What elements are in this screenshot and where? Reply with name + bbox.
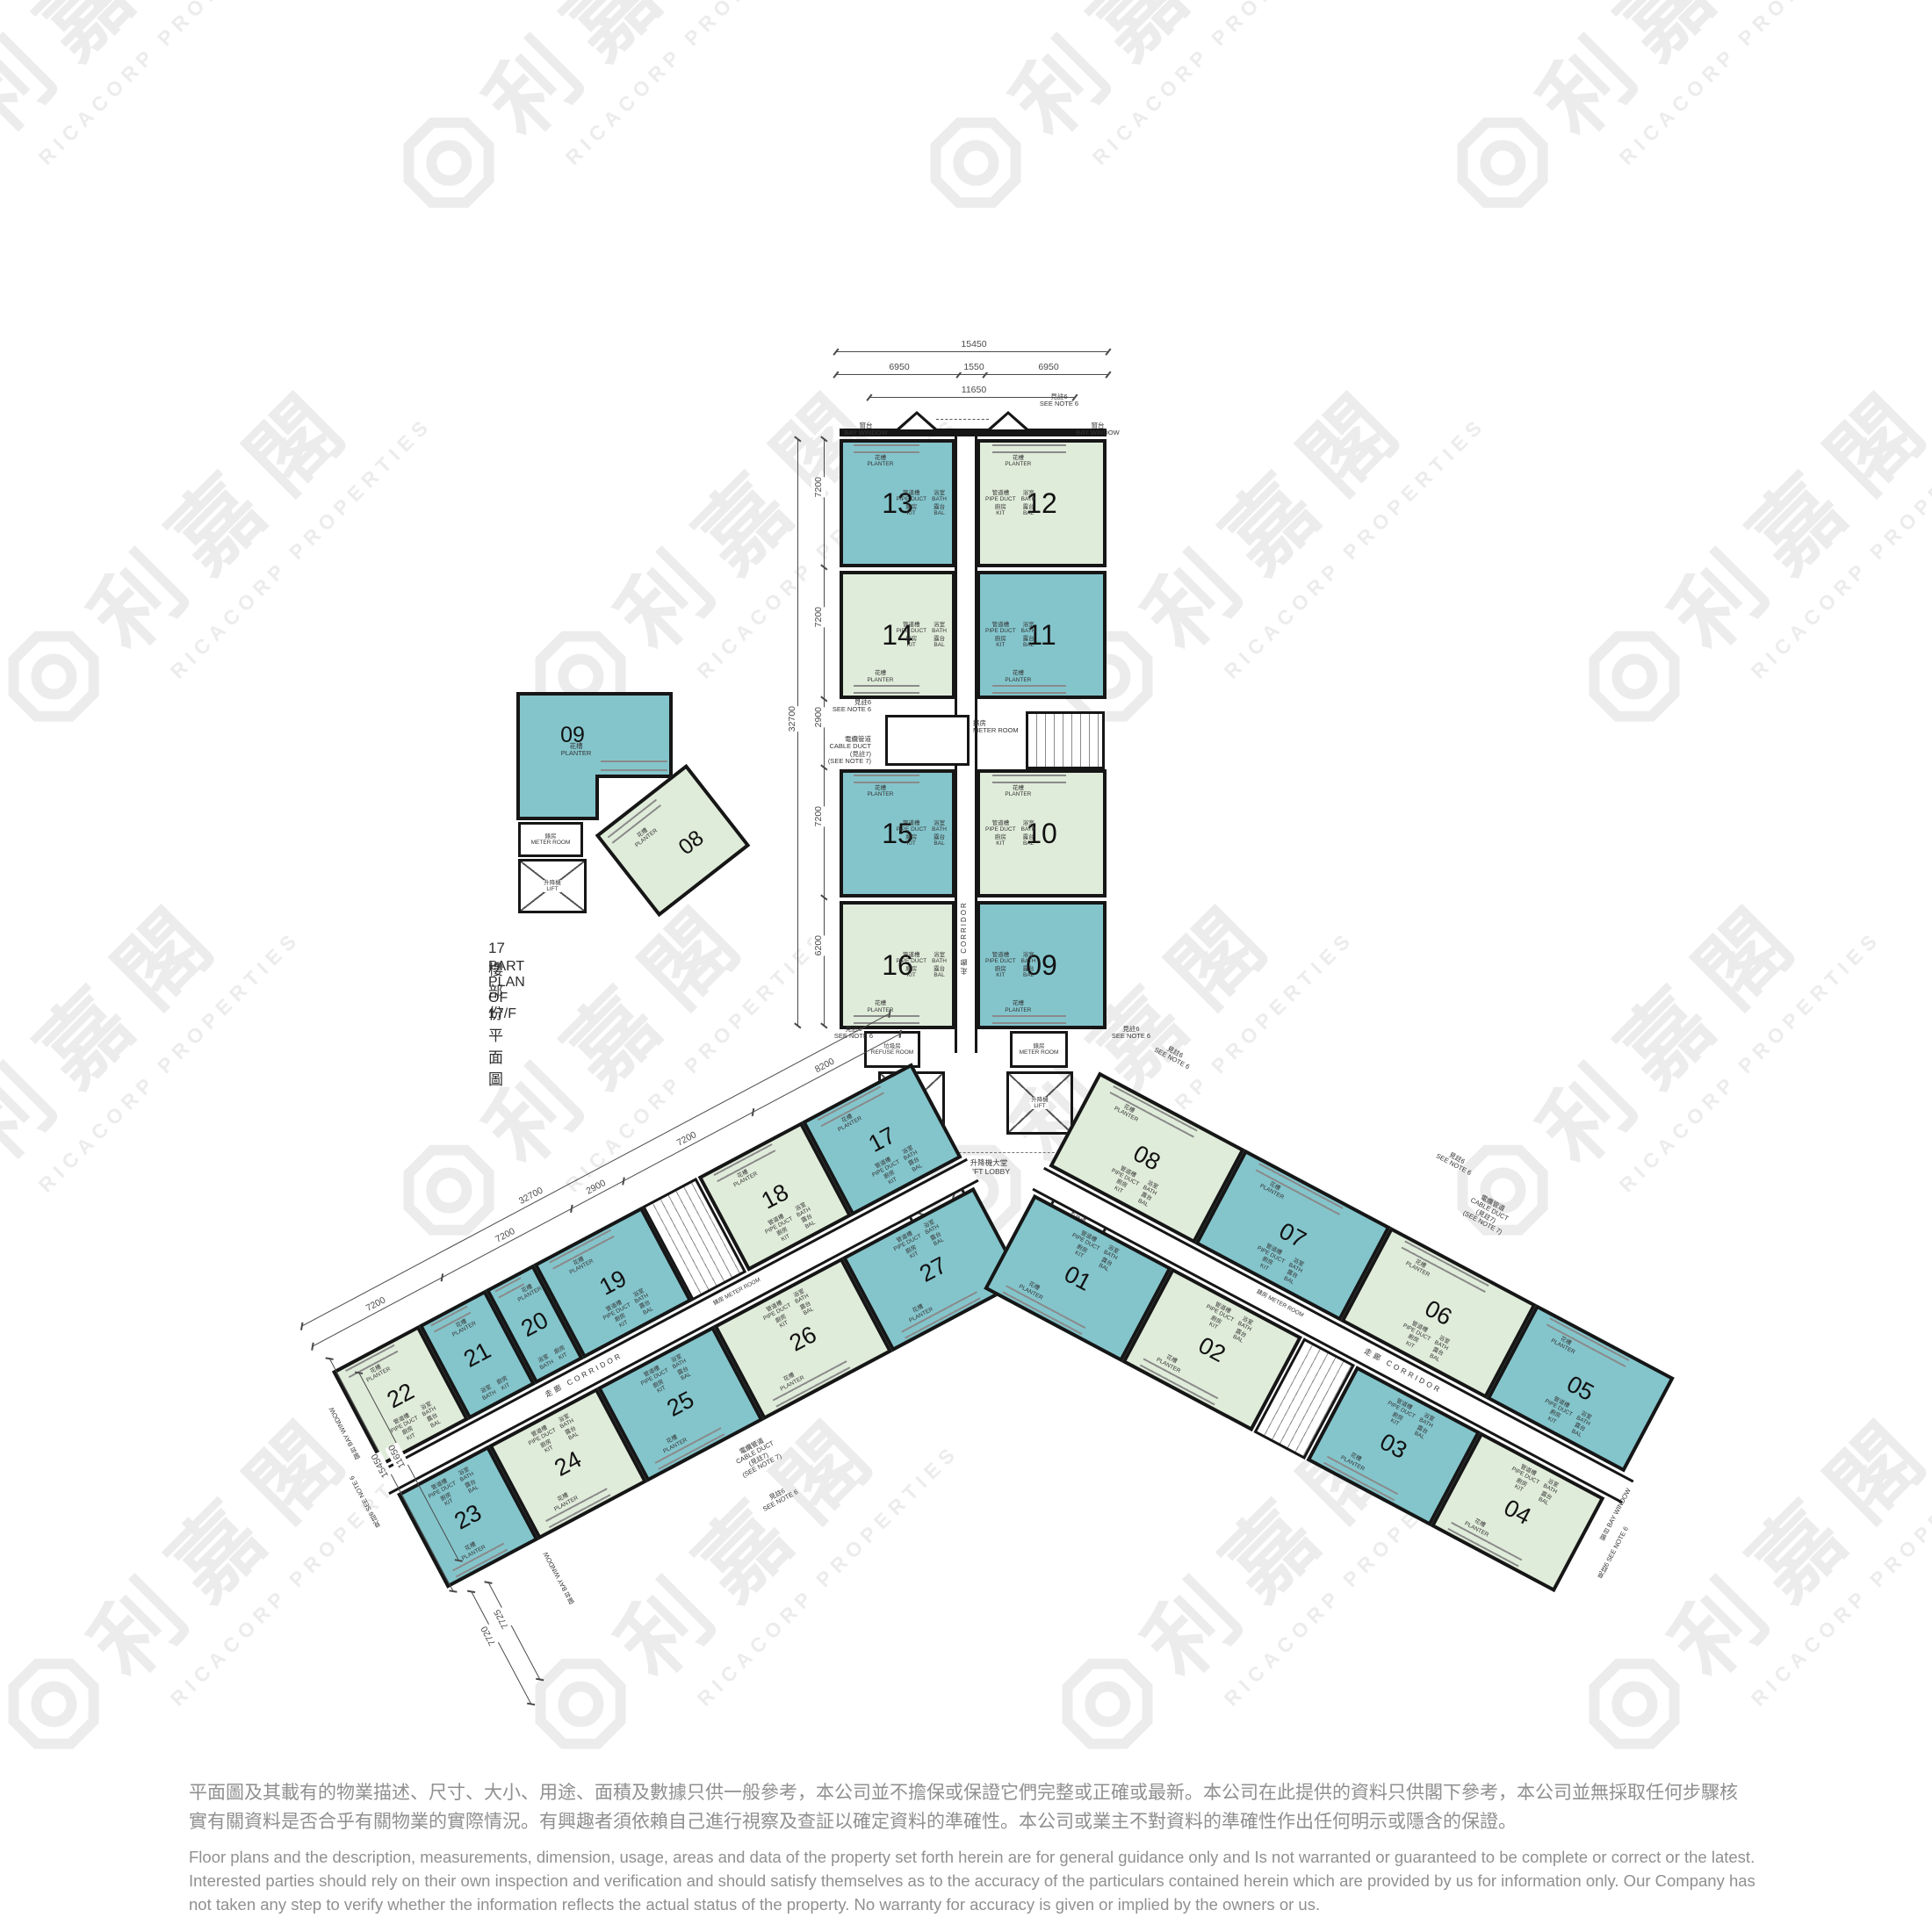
- room-label: 浴室BATH: [1021, 952, 1036, 965]
- room-label-zh: 露台: [932, 636, 947, 642]
- unit-15: 15花槽PLANTER管道槽PIPE DUCT浴室BATH廚房KIT露台BAL: [840, 769, 955, 898]
- meter-room-label: 錶房 METER ROOM: [531, 833, 571, 847]
- room-labels: 管道槽PIPE DUCT浴室BATH廚房KIT露台BAL: [985, 490, 1036, 516]
- room-label-zh: 露台: [932, 966, 947, 972]
- planter-label-zh: 花槽: [987, 1000, 1049, 1006]
- room-label-zh: 管道槽: [985, 820, 1016, 826]
- dim-tick: [449, 1590, 457, 1592]
- room-label-zh: 露台: [1021, 966, 1036, 972]
- room-label-zh: 浴室: [1021, 490, 1036, 496]
- unit-number: 18: [757, 1179, 793, 1215]
- corridor-label: 走廊 CORRIDOR: [959, 878, 969, 975]
- room-label-zh: 廚房: [896, 636, 926, 642]
- dim-tick: [1105, 348, 1111, 355]
- room-label-zh: 浴室: [932, 490, 947, 496]
- floor-plan-canvas: 利嘉閣RICACORP PROPERTIES利嘉閣RICACORP PROPER…: [0, 0, 1932, 1932]
- room-label-en: PIPE DUCT: [896, 826, 926, 833]
- part-plan-caption-en: PART PLAN OF 17/F: [488, 959, 525, 1022]
- planter-strip: [854, 685, 919, 694]
- room-label-en: BATH: [1021, 496, 1036, 502]
- room-label: 浴室BATH: [479, 1383, 498, 1402]
- planter-strip: [601, 761, 667, 771]
- room-labels: 管道槽PIPE DUCT浴室BATH廚房KIT露台BAL: [896, 622, 947, 648]
- dim-top-total: [836, 351, 1108, 352]
- planter-strip: [854, 1015, 919, 1024]
- planter-strip: [992, 685, 1066, 694]
- dim-label: 7725: [490, 1607, 512, 1632]
- bay-window-icon: [987, 411, 1029, 429]
- room-label: 浴室BATH: [1021, 820, 1036, 833]
- room-label: 管道槽PIPE DUCT: [985, 490, 1016, 503]
- room-label: 露台BAL: [1021, 636, 1036, 649]
- room-label-en: PIPE DUCT: [896, 958, 926, 964]
- lift-zh: 升降機: [1031, 1097, 1049, 1103]
- room-label-en: KIT: [985, 840, 1016, 847]
- room-label: 廚房KIT: [896, 966, 926, 979]
- room-label-en: PIPE DUCT: [985, 826, 1016, 833]
- room-label: 露台BAL: [932, 504, 947, 517]
- room-label: 管道槽PIPE DUCT: [896, 820, 926, 833]
- bay-window-zh: 窗台: [563, 1590, 576, 1605]
- meter-room-box: 錶房 METER ROOM: [1010, 1031, 1068, 1068]
- meter-room-zh: 錶房: [1020, 1043, 1059, 1049]
- planter-label-zh: 花槽: [849, 785, 911, 791]
- dim-label: 7200: [349, 1287, 403, 1323]
- planter-label-en: PLANTER: [987, 1007, 1049, 1013]
- bay-window-label: 窗台 BAY WINDOW: [829, 422, 903, 437]
- room-label-zh: 露台: [932, 504, 947, 510]
- room-label-en: BAL: [932, 510, 947, 516]
- room-label-en: PIPE DUCT: [896, 496, 926, 502]
- room-label: 廚房KIT: [985, 504, 1016, 517]
- floor-plan: 1545069501550695011650 72007200290072006…: [0, 0, 1932, 1932]
- see-note-6-label: 見註6 SEE NOTE 6: [1017, 393, 1101, 408]
- room-label-zh: 管道槽: [896, 622, 926, 628]
- dim-label: 6200: [811, 935, 825, 955]
- room-label-zh: 浴室: [1021, 622, 1036, 628]
- planter-label-zh: 花槽: [987, 670, 1049, 676]
- planter-label: 花槽PLANTER: [987, 670, 1049, 683]
- planter-strip: [992, 1015, 1066, 1024]
- dim-label: 6950: [871, 362, 927, 372]
- bay-window-label-en: BAY WINDOW: [1061, 429, 1135, 436]
- unit-14: 14花槽PLANTER管道槽PIPE DUCT浴室BATH廚房KIT露台BAL: [840, 571, 955, 699]
- room-label-zh: 管道槽: [896, 952, 926, 958]
- see-note-6-en: SEE NOTE 6: [1131, 1035, 1212, 1083]
- room-label: 浴室BATH: [536, 1353, 555, 1372]
- unit-number: 08: [674, 825, 709, 861]
- planter-label-zh: 花槽: [987, 455, 1049, 461]
- room-label-en: KIT: [985, 972, 1016, 978]
- planter-label-en: PLANTER: [849, 677, 911, 683]
- bay-window-en: BAY WINDOW: [328, 1406, 355, 1448]
- unit-number: 02: [1194, 1331, 1230, 1367]
- unit-09: 09花槽PLANTER管道槽PIPE DUCT浴室BATH廚房KIT露台BAL: [977, 901, 1107, 1029]
- dim-label: 7200: [811, 477, 825, 497]
- unit-number: 20: [516, 1306, 552, 1342]
- room-label-en: BAL: [932, 972, 947, 978]
- room-labels: 浴室BATH廚房KIT: [536, 1345, 569, 1372]
- unit-11: 11花槽PLANTER管道槽PIPE DUCT浴室BATH廚房KIT露台BAL: [977, 571, 1107, 699]
- room-label-en: PIPE DUCT: [985, 958, 1016, 964]
- lift-en: LIFT: [544, 886, 561, 892]
- unit-number: 05: [1562, 1370, 1598, 1406]
- room-label: 浴室BATH: [932, 820, 947, 833]
- see-note-6-en: SEE NOTE 6: [348, 1474, 373, 1512]
- room-label-en: BAL: [1021, 510, 1036, 516]
- planter-strip: [854, 444, 919, 453]
- planter-label-en: PLANTER: [987, 791, 1049, 797]
- lift-zh: 升降機: [544, 880, 561, 886]
- corridor-label-zh: 走廊: [960, 957, 968, 975]
- staircase: [1026, 711, 1105, 769]
- dim-label: 7200: [811, 607, 825, 627]
- unit-number: 06: [1420, 1294, 1456, 1330]
- room-label: 露台BAL: [1021, 834, 1036, 847]
- room-label-zh: 露台: [1021, 504, 1036, 510]
- lift-box: 升降機 LIFT: [518, 859, 587, 913]
- unit-number: 22: [382, 1377, 418, 1413]
- room-label: 管道槽PIPE DUCT: [896, 622, 926, 635]
- room-label: 廚房KIT: [553, 1345, 569, 1362]
- room-label: 廚房KIT: [985, 966, 1016, 979]
- room-label-en: BAL: [932, 840, 947, 847]
- room-label: 廚房KIT: [896, 834, 926, 847]
- room-label-zh: 廚房: [896, 966, 926, 972]
- cable-duct-label: 電纜管道 CABLE DUCT (見註7) (SEE NOTE 7): [746, 736, 871, 766]
- room-label-en: PIPE DUCT: [985, 628, 1016, 634]
- dim-left-wing-tip: [488, 1582, 541, 1680]
- room-label-en: KIT: [896, 510, 926, 516]
- bay-window-zh: 窗台: [1598, 1526, 1611, 1541]
- unit-number: 24: [550, 1445, 586, 1481]
- planter-strip: [854, 775, 919, 783]
- room-label: 露台BAL: [1021, 504, 1036, 517]
- see-note-6-zh: 見註6: [367, 1510, 382, 1529]
- meter-room-box: 錶房 METER ROOM: [518, 822, 583, 857]
- see-note-6-label: 見註6 SEE NOTE 6: [737, 1471, 821, 1525]
- unit-number: 19: [595, 1265, 631, 1301]
- room-label: 管道槽PIPE DUCT: [896, 952, 926, 965]
- room-label-zh: 浴室: [932, 820, 947, 826]
- room-label: 浴室BATH: [932, 622, 947, 635]
- room-label: 廚房KIT: [896, 504, 926, 517]
- planter-en: PLANTER: [541, 750, 611, 757]
- room-label-zh: 管道槽: [985, 490, 1016, 496]
- unit-10: 10花槽PLANTER管道槽PIPE DUCT浴室BATH廚房KIT露台BAL: [977, 769, 1107, 898]
- room-labels: 管道槽PIPE DUCT浴室BATH廚房KIT露台BAL: [896, 952, 947, 978]
- room-label-zh: 管道槽: [985, 622, 1016, 628]
- room-labels: 浴室BATH廚房KIT: [479, 1375, 512, 1402]
- planter-label-zh: 花槽: [849, 455, 911, 461]
- room-label: 廚房KIT: [496, 1375, 512, 1392]
- unit-number: 27: [915, 1251, 951, 1287]
- meter-room-label: 錶房 METER ROOM: [1020, 1043, 1059, 1056]
- see-note-7-en: (SEE NOTE 7): [746, 758, 871, 765]
- dim-label: 15450: [946, 339, 1002, 350]
- room-label-zh: 浴室: [1021, 952, 1036, 958]
- dim-tick: [1105, 371, 1111, 378]
- lift-en: LIFT: [1031, 1103, 1049, 1109]
- dim-north-left-total: [797, 439, 798, 1026]
- dim-label: 1550: [946, 362, 1002, 372]
- see-note-6-en: SEE NOTE 6: [1017, 400, 1101, 407]
- planter-label-zh: 花槽: [849, 670, 911, 676]
- dim-tick: [536, 1678, 544, 1681]
- planter-label: 花槽PLANTER: [849, 455, 911, 468]
- room-label: 管道槽PIPE DUCT: [896, 490, 926, 503]
- planter-label-en: PLANTER: [849, 791, 911, 797]
- see-note-6-zh: 見註6: [1596, 1561, 1611, 1580]
- meter-room-label: 錶房 METER ROOM: [973, 720, 1022, 735]
- unit-number: 04: [1500, 1494, 1536, 1530]
- room-label-zh: 浴室: [932, 622, 947, 628]
- room-label-en: BATH: [932, 958, 947, 964]
- dim-label: 7200: [660, 1121, 714, 1157]
- room-label: 浴室BATH: [1021, 490, 1036, 503]
- bay-window-label: 窗台 BAY WINDOW: [1061, 422, 1135, 437]
- lift-label: 升降機 LIFT: [1031, 1097, 1049, 1110]
- room-label-en: BATH: [1021, 958, 1036, 964]
- room-label-en: KIT: [896, 840, 926, 847]
- room-label-zh: 廚房: [985, 504, 1016, 510]
- meter-room-en: METER ROOM: [973, 727, 1022, 734]
- unit-number: 17: [864, 1121, 900, 1157]
- room-label-en: BAL: [932, 642, 947, 648]
- planter-label: 花槽PLANTER: [987, 455, 1049, 468]
- room-label-en: BATH: [932, 826, 947, 833]
- bay-window-en: BAY WINDOW: [542, 1551, 569, 1593]
- dim-label: 11650: [946, 385, 1002, 395]
- dim-label: 7200: [811, 806, 825, 826]
- dim-label: 8200: [797, 1048, 852, 1084]
- unit-number: 03: [1375, 1428, 1411, 1464]
- planter-label: 花槽PLANTER: [849, 1000, 911, 1013]
- room-label: 廚房KIT: [896, 636, 926, 649]
- room-labels: 管道槽PIPE DUCT浴室BATH廚房KIT露台BAL: [896, 820, 947, 847]
- room-label-zh: 廚房: [985, 966, 1016, 972]
- unit-number: 01: [1060, 1260, 1096, 1296]
- room-label: 管道槽PIPE DUCT: [985, 820, 1016, 833]
- dim-label: 6950: [1020, 362, 1077, 372]
- refuse-room-en: REFUSE ROOM: [871, 1049, 913, 1056]
- room-label-en: BAL: [1021, 840, 1036, 847]
- lift-box: 升降機 LIFT: [1006, 1071, 1073, 1135]
- room-label: 浴室BATH: [1021, 622, 1036, 635]
- see-note-6-zh: 見註6: [1135, 1028, 1215, 1076]
- room-label: 浴室BATH: [932, 952, 947, 965]
- unit-16: 16花槽PLANTER管道槽PIPE DUCT浴室BATH廚房KIT露台BAL: [840, 901, 955, 1029]
- room-label-en: BATH: [1021, 628, 1036, 634]
- room-label-zh: 管道槽: [896, 490, 926, 496]
- meter-room-en: METER ROOM: [1020, 1049, 1059, 1056]
- meter-room-zh: 錶房: [531, 833, 571, 840]
- right-wing: 走廊 CORRIDOR 錶房 METER ROOM 見註6 SEE NOTE 6…: [978, 1067, 1687, 1605]
- room-labels: 管道槽PIPE DUCT浴室BATH廚房KIT露台BAL: [985, 820, 1036, 847]
- room-label-en: BATH: [1021, 826, 1036, 833]
- planter-label-en: PLANTER: [849, 461, 911, 467]
- bay-window-zh: 窗台: [349, 1445, 362, 1460]
- room-label-zh: 廚房: [896, 504, 926, 510]
- room-labels: 管道槽PIPE DUCT浴室BATH廚房KIT露台BAL: [896, 490, 947, 516]
- planter-label-en: PLANTER: [987, 677, 1049, 683]
- room-label: 露台BAL: [932, 834, 947, 847]
- room-label-en: BAL: [1021, 642, 1036, 648]
- room-label-zh: 廚房: [896, 834, 926, 840]
- room-label-zh: 露台: [1021, 834, 1036, 840]
- see-note-6-zh: 見註6: [1417, 1135, 1497, 1182]
- part-plan-unit-08: 08 花槽 PLANTER: [595, 764, 751, 917]
- disclaimer-english: Floor plans and the description, measure…: [189, 1846, 1757, 1916]
- planter-label-zh: 花槽: [849, 1000, 911, 1006]
- unit-number: 25: [662, 1386, 698, 1422]
- dim-top-segments: [836, 374, 1108, 375]
- see-note-6-label: 見註6 SEE NOTE 6: [1131, 1028, 1215, 1083]
- see-note-6-label: 見註6 SEE NOTE 6: [347, 1474, 382, 1530]
- dim-label: 32700: [504, 1178, 559, 1214]
- room-label: 露台BAL: [1021, 966, 1036, 979]
- room-label-en: KIT: [896, 972, 926, 978]
- dim-label: 2900: [569, 1170, 624, 1206]
- part-plan-unit-09-ext: [516, 775, 599, 820]
- unit-13: 13花槽PLANTER管道槽PIPE DUCT浴室BATH廚房KIT露台BAL: [840, 439, 955, 567]
- room-label-zh: 浴室: [932, 952, 947, 958]
- room-label-en: BAL: [1021, 972, 1036, 978]
- dim-label: 7200: [478, 1217, 532, 1253]
- room-label-en: PIPE DUCT: [985, 496, 1016, 502]
- room-label-zh: 浴室: [1021, 820, 1036, 826]
- room-label: 廚房KIT: [985, 636, 1016, 649]
- room-label-en: KIT: [985, 510, 1016, 516]
- meter-room-en: METER ROOM: [531, 840, 571, 846]
- planter-label-en: PLANTER: [987, 461, 1049, 467]
- see-note-6-zh: 見註6: [737, 1471, 818, 1518]
- planter-strip: [992, 444, 1066, 453]
- planter-label: 花槽PLANTER: [849, 670, 911, 683]
- room-label: 浴室BATH: [932, 490, 947, 503]
- room-label-en: BATH: [932, 628, 947, 634]
- planter-strip: [992, 775, 1066, 783]
- dashed-leader: [936, 419, 989, 420]
- room-label-zh: 廚房: [985, 636, 1016, 642]
- see-note-6-label: 見註6 SEE NOTE 6: [766, 699, 871, 714]
- unit-number: 07: [1274, 1217, 1310, 1253]
- see-note-6-en: SEE NOTE 6: [766, 706, 871, 713]
- room-label-en: BATH: [932, 496, 947, 502]
- planter-label: 花槽PLANTER: [987, 1000, 1049, 1013]
- planter-label: 花槽PLANTER: [987, 785, 1049, 798]
- room-label-en: KIT: [896, 642, 926, 648]
- room-label-en: PIPE DUCT: [896, 628, 926, 634]
- unit-number: 08: [1128, 1140, 1164, 1176]
- see-note-6-en: SEE NOTE 6: [820, 1033, 887, 1040]
- room-label-zh: 管道槽: [896, 820, 926, 826]
- room-label: 管道槽PIPE DUCT: [985, 952, 1016, 965]
- room-label: 廚房KIT: [985, 834, 1016, 847]
- room-label-zh: 管道槽: [985, 952, 1016, 958]
- room-label-zh: 露台: [1021, 636, 1036, 642]
- planter-label-zh: 花槽: [987, 785, 1049, 791]
- unit-12: 12花槽PLANTER管道槽PIPE DUCT浴室BATH廚房KIT露台BAL: [977, 439, 1107, 567]
- unit-number: 21: [459, 1337, 495, 1373]
- bay-window-label: 窗台 BAY WINDOW: [541, 1550, 577, 1606]
- meter-room-box: [885, 715, 970, 766]
- dim-label: 7720: [478, 1624, 500, 1648]
- planter-label: 花槽 PLANTER: [541, 743, 611, 758]
- room-label-zh: 露台: [932, 834, 947, 840]
- corridor-label-en: CORRIDOR: [960, 901, 968, 954]
- room-label: 露台BAL: [932, 966, 947, 979]
- unit-number: 26: [785, 1321, 821, 1357]
- left-wing: 走廊 CORRIDOR 錶房 METER ROOM 電纜管道 CABLE DUC…: [324, 1058, 1033, 1597]
- lift-label: 升降機 LIFT: [544, 880, 561, 893]
- room-label-zh: 廚房: [985, 834, 1016, 840]
- see-note-6-en: SEE NOTE 6: [740, 1477, 821, 1525]
- room-label: 管道槽PIPE DUCT: [985, 622, 1016, 635]
- unit-number: 23: [450, 1499, 486, 1535]
- room-labels: 管道槽PIPE DUCT浴室BATH廚房KIT露台BAL: [985, 622, 1036, 648]
- room-label-en: KIT: [985, 642, 1016, 648]
- planter-label: 花槽PLANTER: [849, 785, 911, 798]
- room-label: 露台BAL: [932, 636, 947, 649]
- dim-tick: [527, 1703, 535, 1705]
- bay-window-label-en: BAY WINDOW: [829, 429, 903, 436]
- disclaimer-chinese: 平面圖及其載有的物業描述、尺寸、大小、用途、面積及數據只供一般參考，本公司並不擔…: [189, 1779, 1750, 1836]
- room-labels: 管道槽PIPE DUCT浴室BATH廚房KIT露台BAL: [985, 952, 1036, 978]
- planter-label-en: PLANTER: [849, 1007, 911, 1013]
